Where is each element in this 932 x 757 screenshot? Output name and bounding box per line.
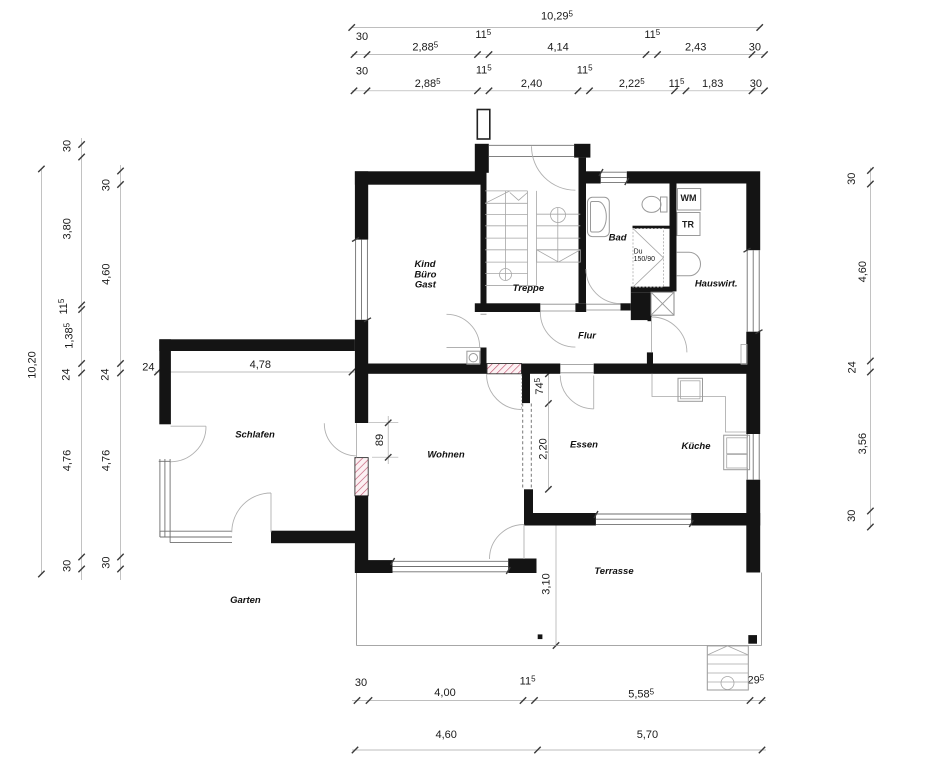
svg-text:4,00: 4,00 bbox=[434, 687, 455, 699]
svg-text:4,76: 4,76 bbox=[101, 450, 113, 471]
svg-text:4,76: 4,76 bbox=[62, 450, 74, 471]
svg-text:3,56: 3,56 bbox=[857, 433, 869, 454]
svg-text:5,70: 5,70 bbox=[637, 729, 658, 741]
svg-text:2,20: 2,20 bbox=[538, 438, 550, 459]
svg-text:24: 24 bbox=[142, 362, 154, 374]
svg-text:Gast: Gast bbox=[415, 280, 437, 291]
svg-text:4,14: 4,14 bbox=[547, 42, 568, 54]
svg-text:3,80: 3,80 bbox=[62, 218, 74, 239]
svg-text:2,43: 2,43 bbox=[685, 42, 706, 54]
svg-text:89: 89 bbox=[374, 434, 386, 446]
svg-text:Du: Du bbox=[634, 249, 643, 256]
svg-text:30: 30 bbox=[750, 78, 762, 90]
svg-text:24: 24 bbox=[100, 368, 112, 380]
svg-text:30: 30 bbox=[355, 677, 367, 689]
svg-text:30: 30 bbox=[62, 140, 74, 152]
svg-text:1,83: 1,83 bbox=[702, 78, 723, 90]
svg-text:30: 30 bbox=[846, 510, 858, 522]
svg-text:30: 30 bbox=[62, 560, 74, 572]
svg-text:150/90: 150/90 bbox=[634, 256, 656, 263]
svg-text:30: 30 bbox=[101, 556, 113, 568]
svg-text:30: 30 bbox=[846, 173, 858, 185]
svg-text:Kind: Kind bbox=[414, 259, 435, 270]
svg-text:Wohnen: Wohnen bbox=[427, 450, 464, 461]
svg-text:Schlafen: Schlafen bbox=[235, 430, 275, 441]
svg-text:Treppe: Treppe bbox=[513, 283, 545, 294]
svg-text:Garten: Garten bbox=[230, 595, 261, 606]
svg-text:4,60: 4,60 bbox=[101, 263, 113, 284]
svg-text:30: 30 bbox=[101, 179, 113, 191]
svg-text:10,20: 10,20 bbox=[27, 351, 39, 379]
svg-text:24: 24 bbox=[846, 361, 858, 373]
svg-text:30: 30 bbox=[356, 66, 368, 78]
svg-text:Hauswirt.: Hauswirt. bbox=[695, 278, 738, 289]
svg-text:30: 30 bbox=[356, 31, 368, 43]
svg-text:Essen: Essen bbox=[570, 440, 598, 451]
svg-text:2,40: 2,40 bbox=[521, 78, 542, 90]
svg-text:24: 24 bbox=[61, 368, 73, 380]
svg-text:4,60: 4,60 bbox=[435, 729, 456, 741]
svg-text:3,10: 3,10 bbox=[541, 573, 553, 594]
svg-text:TR: TR bbox=[682, 220, 694, 230]
svg-text:30: 30 bbox=[749, 42, 761, 54]
svg-text:Bad: Bad bbox=[609, 233, 627, 244]
svg-text:Küche: Küche bbox=[681, 441, 711, 452]
svg-text:Terrasse: Terrasse bbox=[594, 566, 634, 577]
svg-text:4,78: 4,78 bbox=[250, 359, 271, 371]
svg-text:Flur: Flur bbox=[578, 330, 597, 341]
svg-text:WM: WM bbox=[681, 193, 697, 203]
svg-text:4,60: 4,60 bbox=[857, 261, 869, 282]
